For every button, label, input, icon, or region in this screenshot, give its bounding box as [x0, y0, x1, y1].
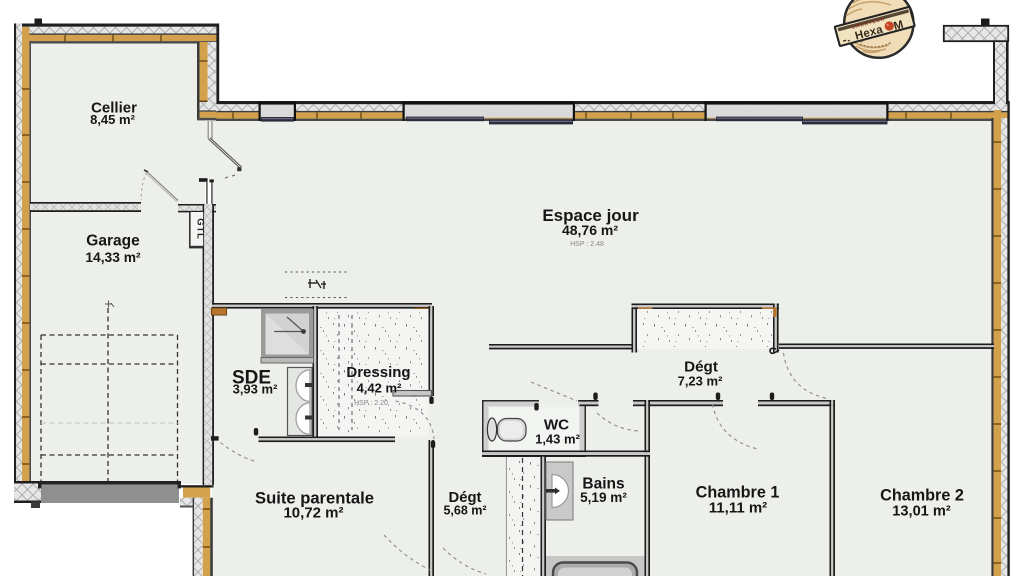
svg-text:Dressing: Dressing: [346, 364, 410, 381]
svg-text:GTL: GTL: [194, 218, 205, 239]
svg-text:Garage: Garage: [86, 233, 140, 250]
svg-text:14,33 m²: 14,33 m²: [85, 250, 141, 265]
svg-text:7,23 m²: 7,23 m²: [678, 374, 723, 389]
svg-text:11,11 m²: 11,11 m²: [709, 500, 767, 517]
svg-text:HSP : 2.48: HSP : 2.48: [570, 241, 604, 248]
svg-text:Chambre 2: Chambre 2: [880, 487, 964, 505]
svg-text:13,01 m²: 13,01 m²: [892, 504, 951, 520]
svg-text:10,72 m²: 10,72 m²: [283, 505, 343, 522]
svg-text:48,76 m²: 48,76 m²: [562, 222, 618, 238]
svg-text:4,42 m²: 4,42 m²: [357, 381, 402, 396]
svg-text:5,19 m²: 5,19 m²: [580, 490, 627, 505]
svg-text:1,43 m²: 1,43 m²: [535, 432, 580, 447]
svg-text:8,45 m²: 8,45 m²: [90, 112, 135, 127]
svg-text:5,68 m²: 5,68 m²: [443, 504, 486, 518]
svg-text:HSP : 2.20: HSP : 2.20: [354, 400, 388, 407]
svg-text:3,93 m²: 3,93 m²: [233, 382, 278, 397]
